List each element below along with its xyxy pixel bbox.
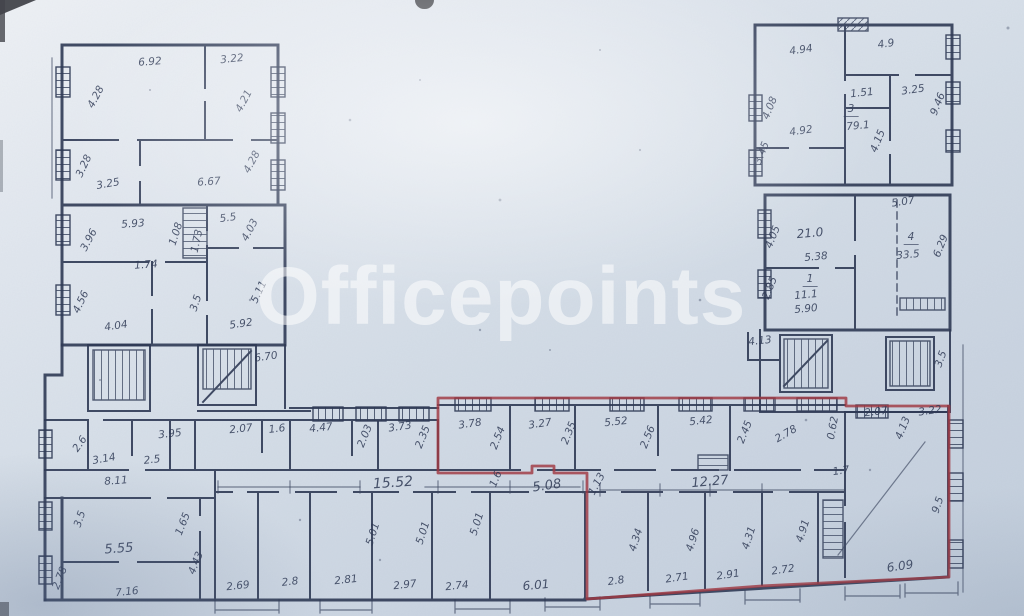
- photo-edge-artifact: [0, 0, 5, 42]
- paper-noise-texture: [0, 0, 1024, 616]
- photo-corner-artifact: [0, 0, 36, 15]
- scanned-floor-plan: 6.923.224.284.213.283.256.674.285.933.96…: [0, 0, 1024, 616]
- photo-edge-artifact-left: [0, 140, 3, 192]
- floor-plan-drawing: [0, 0, 1024, 616]
- photo-corner-artifact-bottom: [0, 602, 9, 616]
